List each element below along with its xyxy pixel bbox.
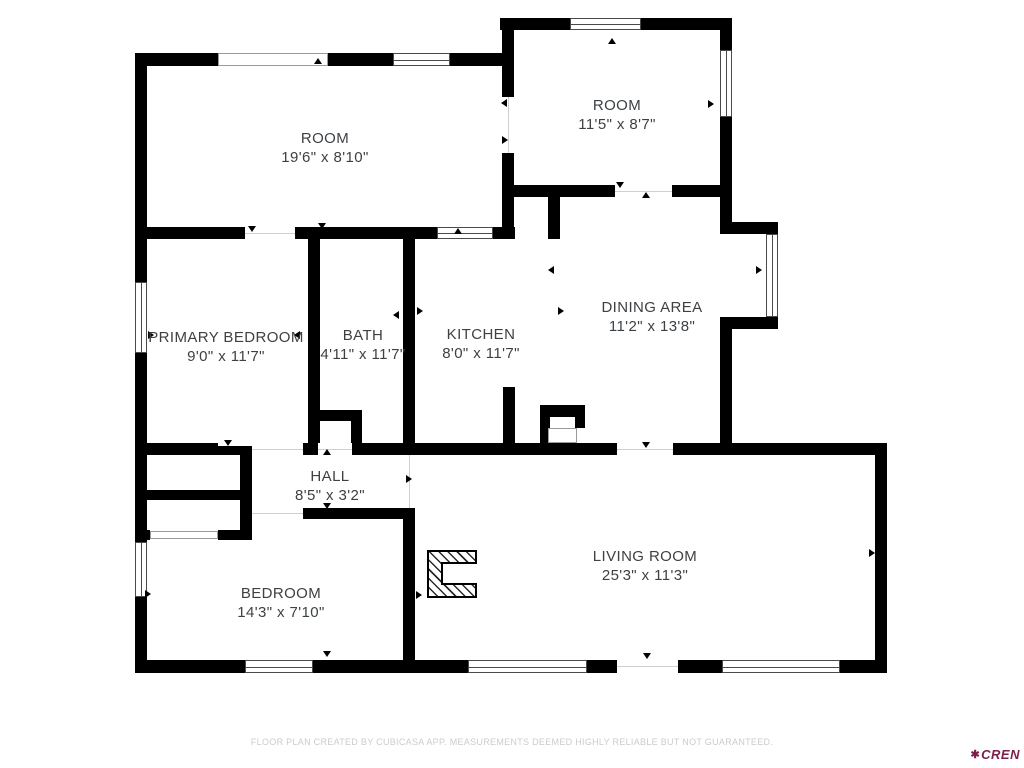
room-dims: 4'11" x 11'7" (320, 345, 405, 364)
wall (303, 443, 318, 455)
wall (548, 197, 560, 239)
wall (672, 185, 720, 197)
room-label-living-room: LIVING ROOM 25'3" x 11'3" (593, 547, 697, 585)
wall (720, 117, 732, 222)
measure-arrow-icon (416, 591, 422, 599)
footer-disclaimer: FLOOR PLAN CREATED BY CUBICASA APP. MEAS… (0, 737, 1024, 747)
door-threshold (617, 666, 678, 667)
wall (313, 660, 468, 673)
door-arrow-icon (643, 653, 651, 659)
room-label-primary-bedroom: PRIMARY BEDROOM 9'0" x 11'7" (148, 328, 303, 366)
wall (514, 185, 615, 197)
boundary-arrow-icon (558, 307, 564, 315)
room-label-dining-area: DINING AREA 11'2" x 13'8" (601, 298, 702, 336)
wall (720, 317, 778, 329)
door-arrow-icon (642, 192, 650, 198)
room-dims: 19'6" x 8'10" (281, 148, 368, 167)
fireplace-opening (441, 562, 477, 585)
door-threshold (252, 449, 303, 450)
cren-logo-star-icon: ✱ (970, 748, 980, 761)
wall (135, 53, 147, 282)
wall (502, 30, 514, 97)
room-name: BATH (320, 326, 405, 345)
wall (720, 222, 778, 234)
room-dims: 8'5" x 3'2" (295, 486, 365, 505)
room-label-hall: HALL 8'5" x 3'2" (295, 467, 365, 505)
door-arrow-icon (642, 442, 650, 448)
door-threshold (617, 449, 673, 450)
window (722, 660, 840, 673)
window-arrow-icon (608, 38, 616, 44)
wall (673, 443, 887, 455)
cren-logo-text: CREN (981, 747, 1020, 762)
room-dims: 9'0" x 11'7" (148, 347, 303, 366)
wall (218, 530, 252, 540)
wall (875, 443, 887, 673)
window (437, 227, 493, 239)
wall (135, 53, 218, 66)
room-label-kitchen: KITCHEN 8'0" x 11'7" (442, 325, 520, 363)
wall (720, 30, 732, 50)
wall (493, 227, 515, 239)
window-arrow-icon (145, 590, 151, 598)
door-arrow-icon (248, 226, 256, 232)
door-arrow-icon (502, 136, 508, 144)
window-arrow-icon (454, 228, 462, 234)
room-label-bedroom: BEDROOM 14'3" x 7'10" (237, 584, 324, 622)
measure-arrow-icon (417, 307, 423, 315)
room-name: KITCHEN (442, 325, 520, 344)
boundary-arrow-icon (548, 266, 554, 274)
wall (295, 227, 437, 239)
wall (403, 519, 415, 673)
wall (575, 417, 585, 428)
closet-sliding-door (150, 531, 218, 539)
window (766, 234, 778, 317)
wall (351, 421, 362, 443)
measure-arrow-icon (393, 311, 399, 319)
room-name: DINING AREA (601, 298, 702, 317)
opening-arrow-icon (138, 137, 144, 145)
room-name: HALL (295, 467, 365, 486)
window (135, 282, 147, 353)
window (393, 53, 450, 66)
door-threshold (252, 513, 303, 514)
wall (308, 410, 362, 421)
room-dims: 11'5" x 8'7" (578, 115, 656, 134)
door-arrow-icon (406, 475, 412, 483)
wall (503, 387, 515, 443)
room-label-top-right: ROOM 11'5" x 8'7" (578, 96, 656, 134)
wall (500, 18, 570, 30)
window-arrow-icon (756, 266, 762, 274)
cren-logo: ✱ CREN (970, 747, 1020, 762)
window (468, 660, 587, 673)
door-arrow-icon (323, 449, 331, 455)
room-name: BEDROOM (237, 584, 324, 603)
wall (303, 508, 415, 519)
floor-plan: ROOM 19'6" x 8'10" ROOM 11'5" x 8'7" PRI… (0, 0, 1024, 768)
door-arrow-icon (318, 223, 326, 229)
wall (328, 53, 393, 66)
window-arrow-icon (708, 100, 714, 108)
window (135, 542, 147, 597)
door-arrow-icon (501, 99, 507, 107)
wall (641, 18, 732, 30)
room-name: ROOM (281, 129, 368, 148)
room-dims: 11'2" x 13'8" (601, 317, 702, 336)
sliding-opening (218, 53, 328, 66)
room-name: PRIMARY BEDROOM (148, 328, 303, 347)
wall (678, 660, 722, 673)
wall (540, 405, 585, 417)
room-name: LIVING ROOM (593, 547, 697, 566)
room-label-bath: BATH 4'11" x 11'7" (320, 326, 405, 364)
wall (720, 329, 732, 455)
wall (407, 443, 617, 455)
door-threshold (508, 97, 509, 153)
room-dims: 25'3" x 11'3" (593, 566, 697, 585)
wall (352, 443, 415, 455)
room-label-top-left: ROOM 19'6" x 8'10" (281, 129, 368, 167)
door-leaf (548, 428, 577, 443)
wall (135, 490, 252, 500)
door-arrow-icon (616, 182, 624, 188)
wall (135, 660, 245, 673)
window (570, 18, 641, 30)
opening-arrow-icon (314, 58, 322, 64)
measure-arrow-icon (869, 549, 875, 557)
window (245, 660, 313, 673)
room-dims: 8'0" x 11'7" (442, 344, 520, 363)
door-arrow-icon (224, 440, 232, 446)
window (720, 50, 732, 117)
door-threshold (245, 233, 295, 234)
wall (135, 227, 245, 239)
room-dims: 14'3" x 7'10" (237, 603, 324, 622)
wall (135, 443, 218, 455)
window-arrow-icon (323, 651, 331, 657)
wall (587, 660, 617, 673)
wall (135, 530, 150, 540)
room-name: ROOM (578, 96, 656, 115)
